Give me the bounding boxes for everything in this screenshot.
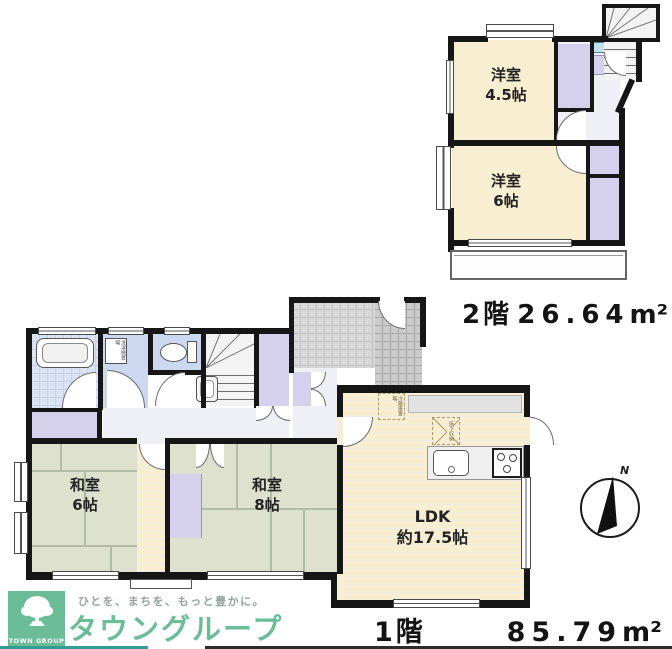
floor1-name: 1階 — [374, 610, 426, 649]
tree-icon — [17, 594, 57, 630]
back-door-arc — [530, 417, 554, 445]
window — [521, 477, 531, 569]
floor1-hall-closet — [259, 334, 289, 406]
wall-segment — [636, 40, 642, 82]
bay-window — [486, 24, 554, 38]
wall-segment — [26, 572, 54, 580]
bay-window — [14, 512, 28, 554]
room-size: 8帖 — [222, 496, 312, 516]
room-name: 和室 — [222, 476, 312, 496]
wall-segment — [165, 438, 337, 444]
room-label-yoshitsu45: 洋室 4.5帖 — [462, 66, 550, 105]
tatami-line — [110, 545, 112, 574]
wall-segment — [448, 36, 488, 42]
window-sill — [130, 579, 192, 589]
burner-icon — [503, 465, 511, 473]
shoe-cabinet — [293, 372, 311, 406]
balcony-rail-line — [454, 255, 623, 256]
wall-segment — [165, 444, 170, 574]
wall-segment — [448, 140, 625, 146]
wall-segment — [448, 36, 454, 62]
wall-segment — [26, 328, 32, 414]
kitchen-sink — [433, 450, 469, 476]
wall-segment — [590, 40, 594, 112]
room-size: 6帖 — [40, 496, 130, 516]
burner-icon — [509, 454, 517, 462]
room-size: 約17.5帖 — [380, 528, 485, 549]
wall-segment — [29, 408, 102, 412]
room-size: 4.5帖 — [462, 86, 550, 106]
compass-north-label: N — [620, 464, 629, 477]
kitchen-stove — [492, 448, 522, 478]
washing-machine: 洗濯機置場 — [105, 338, 127, 364]
entrance-hall — [293, 302, 375, 368]
wall-segment — [254, 330, 259, 408]
wall-segment — [201, 330, 206, 408]
window — [164, 327, 190, 335]
tatami-line — [303, 508, 305, 574]
tatami-line — [32, 545, 137, 547]
wall-segment — [148, 330, 153, 374]
note-text: 冷蔵庫置場 — [391, 396, 403, 420]
floor2-area-label: 2階 26.64m² — [462, 294, 668, 331]
toilet-tank — [187, 341, 197, 363]
room-name: LDK — [380, 507, 485, 528]
bathtub-inner — [42, 343, 88, 363]
floor1-area: 85.79m² — [507, 617, 662, 648]
brand-logo: TOWN GROUP — [8, 591, 65, 648]
floor1-stairs — [206, 334, 254, 368]
wall-segment — [289, 297, 294, 373]
wall-segment — [586, 174, 625, 178]
door-arc — [155, 372, 185, 406]
room-label-ldk: LDK 約17.5帖 — [380, 507, 485, 549]
floorplan-canvas: 洋室 4.5帖 洋室 6帖 2階 26.64m² — [0, 0, 672, 649]
room-label-washitsu8: 和室 8帖 — [222, 476, 312, 515]
wall-segment — [337, 391, 343, 417]
window — [468, 239, 572, 247]
wall-segment — [570, 240, 625, 246]
oshiire-closet — [170, 474, 202, 538]
floor2-area: 26.64m² — [517, 300, 668, 330]
room-label-yoshitsu6: 洋室 6帖 — [462, 172, 550, 211]
wall-segment — [524, 385, 530, 417]
window — [52, 571, 119, 580]
room-name: 和室 — [40, 476, 130, 496]
wall-segment — [554, 40, 558, 142]
bay-window — [436, 146, 451, 210]
bay-window — [14, 462, 28, 502]
note-text: 床下収納 — [447, 421, 453, 444]
floor1-area-label: 1階 85.79m² — [374, 610, 662, 649]
wall-segment — [478, 600, 530, 608]
window — [446, 60, 454, 114]
toilet-bowl — [160, 343, 187, 362]
kitchen-wall-counter — [408, 395, 522, 413]
window — [108, 327, 144, 335]
floor2-stairwell — [602, 4, 660, 42]
room-label-washitsu6: 和室 6帖 — [40, 476, 130, 515]
bathtub — [36, 338, 94, 368]
wall-segment — [26, 438, 137, 444]
wall-segment — [524, 445, 530, 479]
wall-segment — [552, 36, 608, 42]
floor2-name: 2階 — [462, 294, 512, 331]
window — [38, 327, 96, 335]
room-size: 6帖 — [462, 192, 550, 212]
compass-icon: N — [576, 464, 648, 544]
wall-segment — [289, 297, 380, 303]
tatami-line — [60, 444, 62, 470]
wall-segment — [331, 600, 395, 608]
note-text: 洗濯機置場 — [114, 340, 126, 364]
wall-segment — [337, 445, 343, 574]
underfloor-storage-note: 床下収納 — [432, 417, 460, 445]
floor2-closet-a — [558, 44, 590, 108]
burner-icon — [497, 453, 505, 461]
logo-caption: TOWN GROUP — [8, 637, 65, 645]
wall-segment — [337, 385, 530, 393]
wall-segment — [586, 146, 590, 242]
wall-segment — [98, 334, 103, 410]
wall-segment — [420, 297, 426, 347]
window — [207, 571, 304, 580]
brand-name: タウングループ — [68, 606, 283, 648]
fridge-space-note: 冷蔵庫置場 — [378, 393, 405, 420]
faucet-icon — [448, 466, 455, 473]
wash-basin — [196, 376, 218, 402]
room-name: 洋室 — [462, 172, 550, 192]
window — [393, 599, 480, 608]
room-name: 洋室 — [462, 66, 550, 86]
